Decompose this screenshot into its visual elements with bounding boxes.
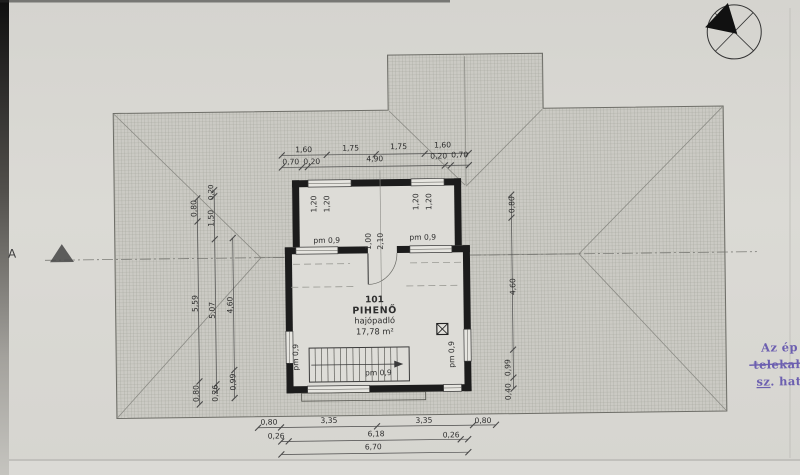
room-area: 17,78 m² (356, 326, 394, 336)
dim-label: 0,26 (268, 431, 285, 440)
dim-label: 0,80 (474, 416, 491, 425)
dim-label: 1,75 (342, 143, 359, 152)
dim-label: 0,20 (430, 151, 447, 160)
dim-label: 1,60 (295, 145, 312, 154)
section-marker-label: A (8, 247, 17, 261)
dim-label: 1,20 (309, 195, 318, 212)
dim-label: 0,80 (192, 385, 201, 402)
chimney-symbol (437, 323, 448, 334)
dim-label: 0,26 (443, 430, 460, 439)
dim-label: 6,70 (365, 442, 382, 451)
dim-label: 2,10 (376, 233, 385, 250)
paper-bottom-strip (0, 461, 800, 475)
dim-label: 1,50 (206, 210, 215, 227)
stamp-line-3: sz. hat (756, 374, 800, 389)
dim-label: 3,35 (320, 416, 337, 425)
pm-label: pm 0,9 (409, 233, 436, 242)
paper-left-edge-shadow (0, 0, 9, 475)
dim-label: 0,70 (451, 150, 468, 159)
dim-label: 4,60 (508, 278, 517, 295)
dim-label: 5,59 (190, 295, 199, 312)
dim-label: 6,18 (368, 429, 385, 438)
dim-label: 5,07 (207, 302, 216, 319)
dim-label: 1,20 (424, 193, 433, 210)
stairs (309, 347, 409, 382)
dim-label: 0,80 (260, 418, 277, 427)
dim-label: 0,80 (189, 200, 198, 217)
pm-label: pm 0,9 (313, 236, 340, 245)
dim-label: 1,00 (364, 233, 373, 250)
dim-label: 0,99 (228, 373, 237, 390)
scanned-floor-plan-page: A (0, 0, 800, 475)
dim-label: 0,26 (211, 385, 220, 402)
dim-label: 4,60 (225, 296, 234, 313)
dim-label: 1,20 (411, 193, 420, 210)
pm-label: pm 0,9 (291, 344, 300, 371)
room-number: 101 (365, 295, 384, 305)
stamp-line-1: Az ép (760, 340, 798, 354)
dim-label: 0,80 (507, 196, 516, 213)
dim-label: 0,20 (303, 157, 320, 166)
floor-plan-canvas: A (0, 0, 800, 475)
dim-label: 0,40 (504, 383, 513, 400)
dim-label: 4,90 (366, 154, 383, 163)
paper-top-edge-shadow (0, 0, 450, 3)
dim-label: 1,20 (322, 195, 331, 212)
dim-label: 0,20 (207, 184, 215, 200)
pm-label: pm 0,9 (365, 368, 392, 377)
dim-label: 3,35 (415, 416, 432, 425)
dim-label: 1,60 (434, 140, 451, 149)
room-flooring: hajópadló (354, 315, 395, 325)
dim-label: 1,75 (390, 142, 407, 151)
dim-label: 0,99 (503, 359, 512, 376)
dim-label: 0,70 (282, 157, 299, 166)
pm-label: pm 0,9 (447, 341, 456, 368)
